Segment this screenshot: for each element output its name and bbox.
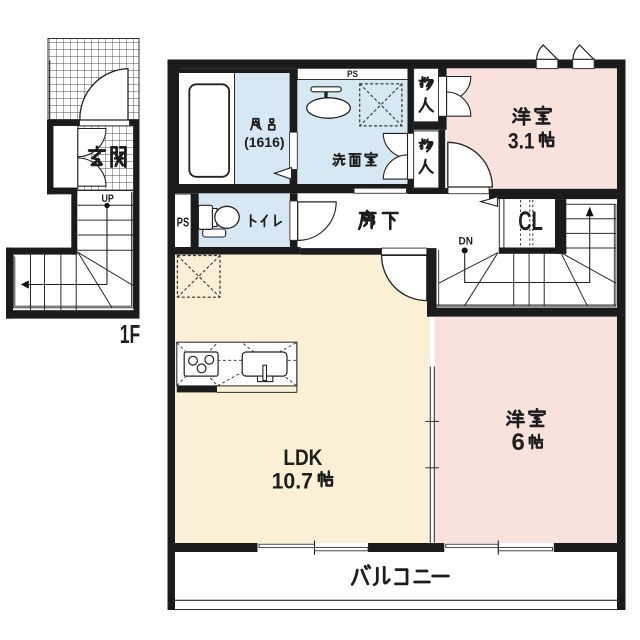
svg-text:3.1: 3.1 (508, 129, 535, 154)
svg-text:10.7: 10.7 (272, 468, 313, 493)
svg-text:6: 6 (512, 429, 525, 456)
svg-text:DN: DN (459, 236, 474, 248)
svg-text:1F: 1F (120, 319, 140, 349)
svg-text:PS: PS (177, 214, 190, 229)
svg-text:CL: CL (518, 206, 543, 236)
svg-text:LDK: LDK (283, 445, 323, 470)
svg-text:(1616): (1616) (244, 134, 284, 150)
svg-text:PS: PS (347, 69, 358, 80)
svg-text:UP: UP (102, 193, 114, 205)
